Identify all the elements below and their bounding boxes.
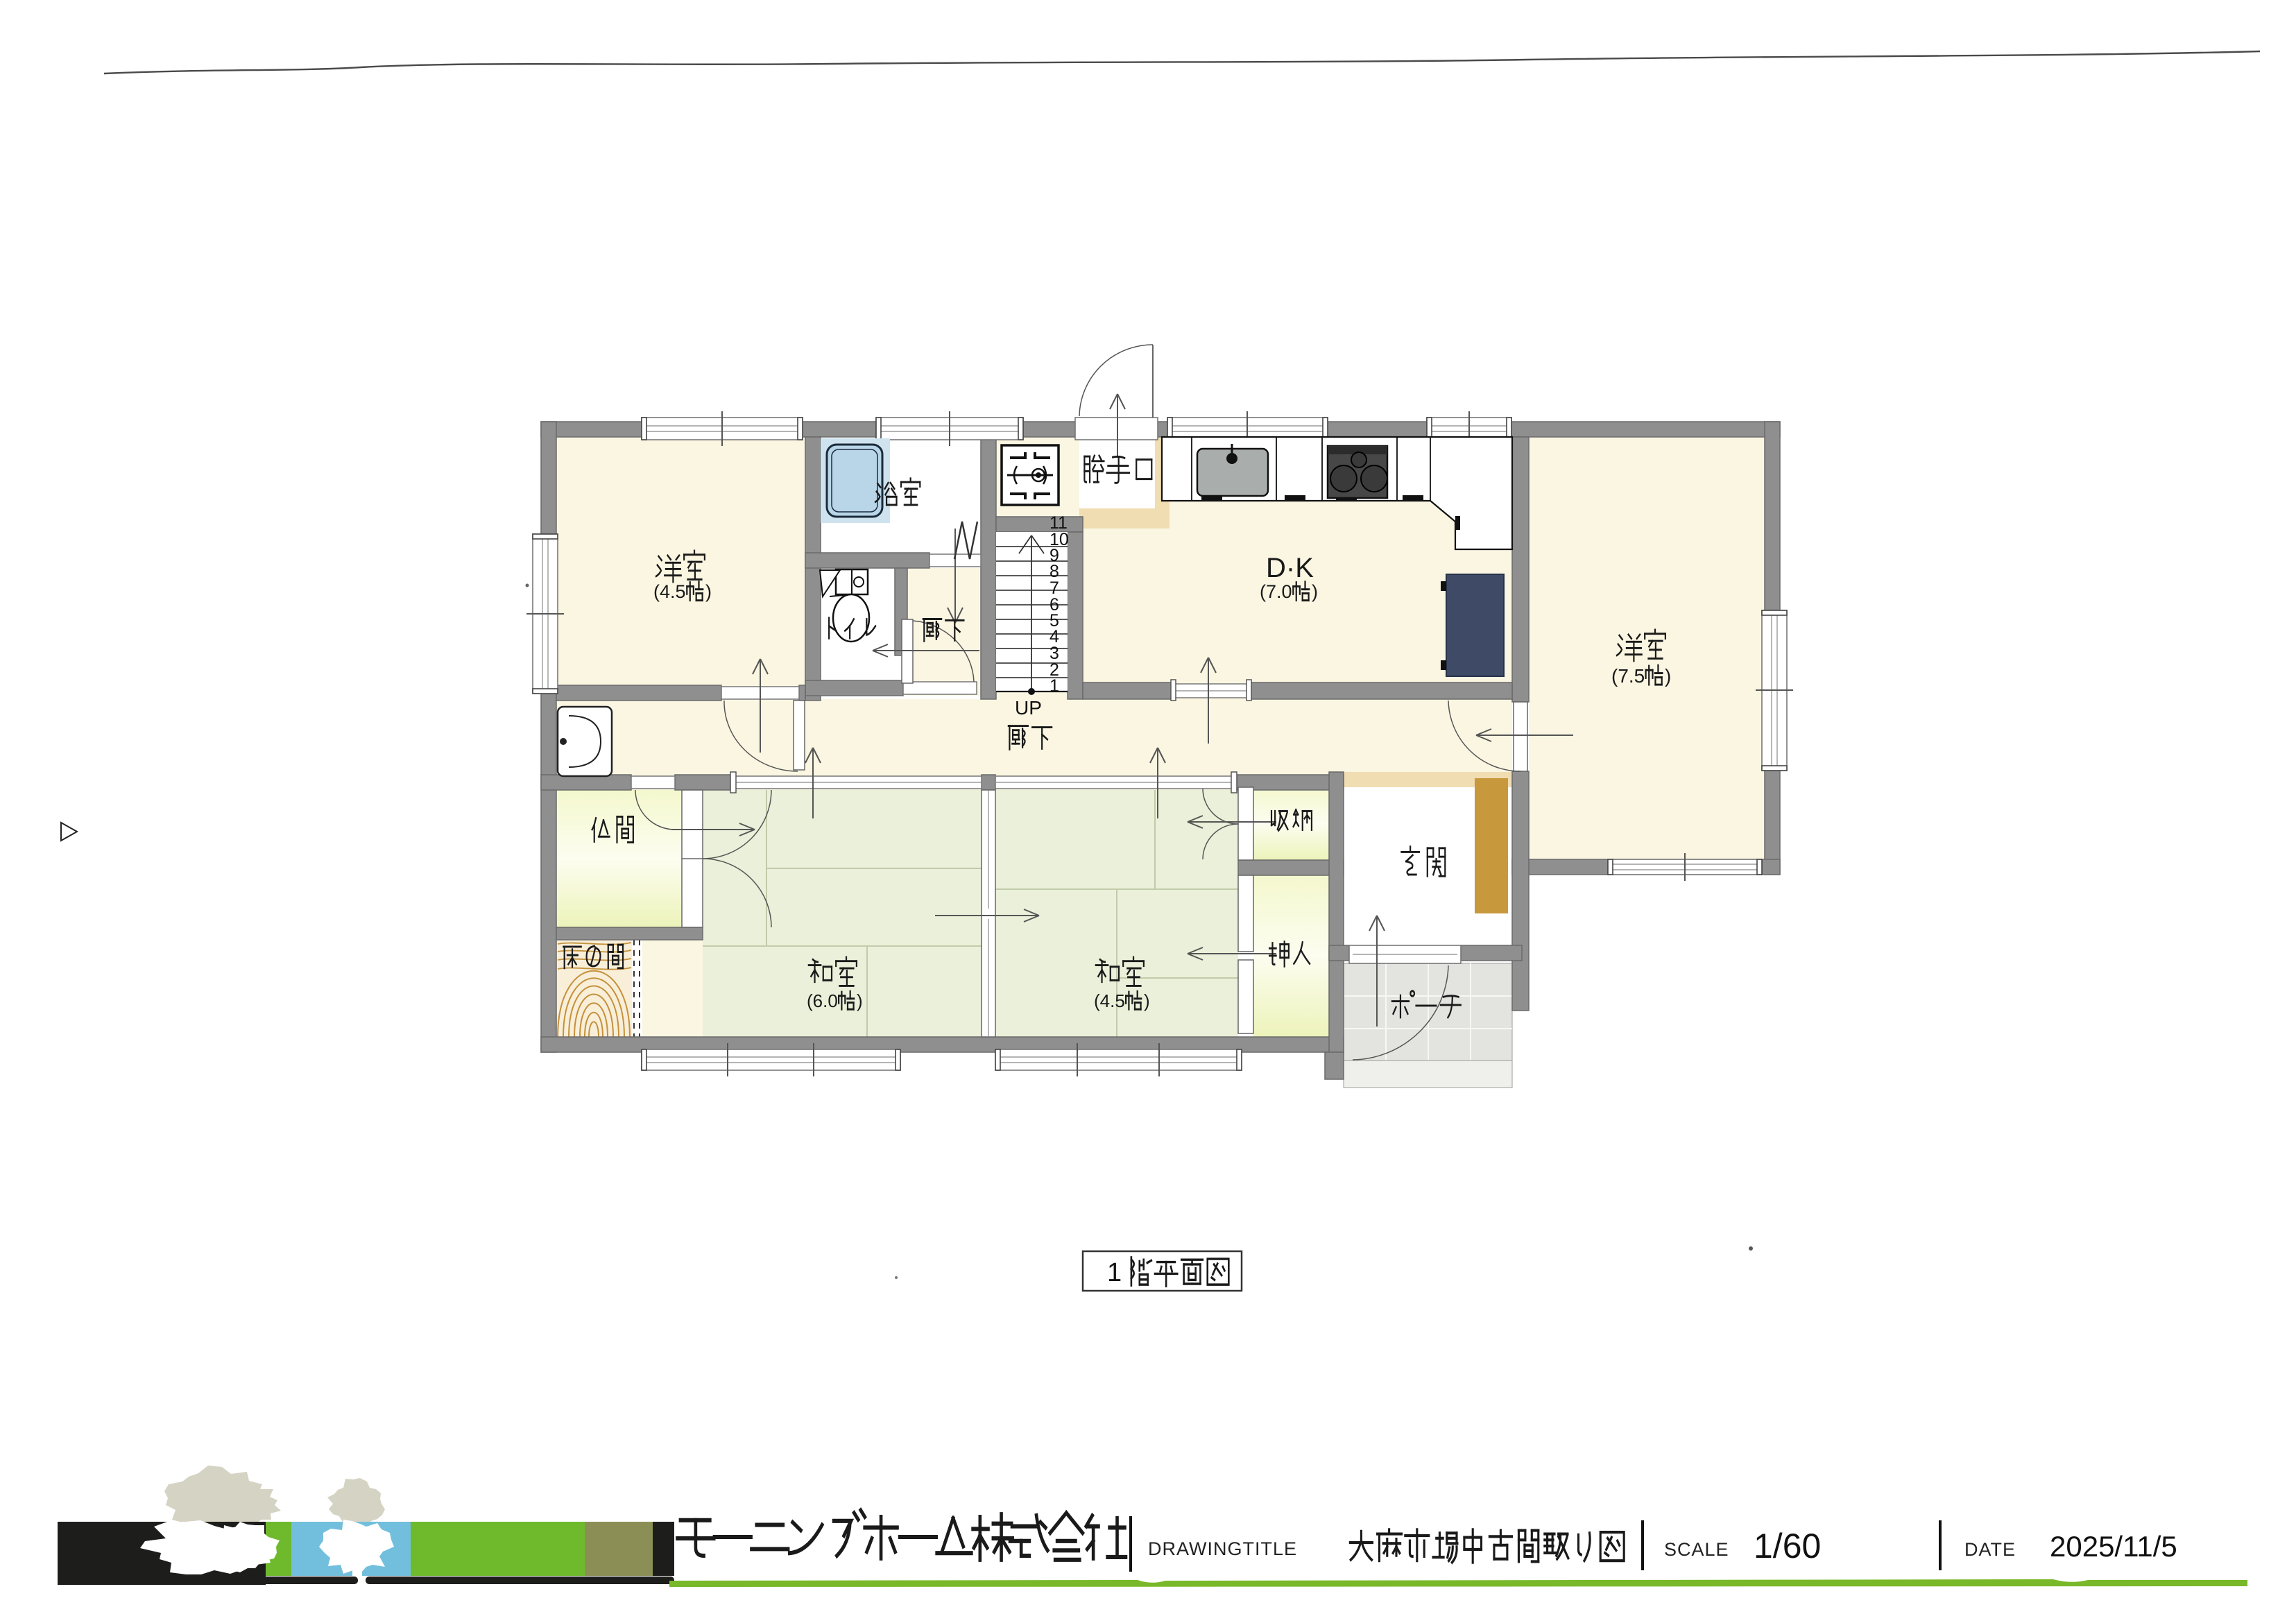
svg-text:): ) — [857, 990, 863, 1011]
svg-text:(4.5: (4.5 — [653, 581, 686, 602]
svg-text:DRAWINGTITLE: DRAWINGTITLE — [1148, 1538, 1297, 1559]
svg-text:1/60: 1/60 — [1754, 1527, 1821, 1565]
svg-text:1: 1 — [1050, 676, 1059, 696]
svg-text:(7.0: (7.0 — [1260, 581, 1292, 602]
svg-text:(6.0: (6.0 — [807, 990, 838, 1011]
svg-text:): ) — [1144, 990, 1150, 1011]
svg-text:DATE: DATE — [1964, 1539, 2016, 1560]
svg-text:): ) — [1665, 665, 1671, 687]
svg-text:(4.5: (4.5 — [1094, 990, 1125, 1011]
svg-text:2025/11/5: 2025/11/5 — [2050, 1530, 2177, 1563]
svg-text:(7.5: (7.5 — [1611, 665, 1645, 687]
svg-text:SCALE: SCALE — [1664, 1539, 1729, 1560]
svg-text:1: 1 — [1107, 1258, 1122, 1287]
svg-text:): ) — [705, 581, 712, 602]
svg-text:D·K: D·K — [1266, 553, 1314, 583]
svg-text:): ) — [1312, 581, 1318, 602]
svg-text:UP: UP — [1015, 697, 1042, 719]
